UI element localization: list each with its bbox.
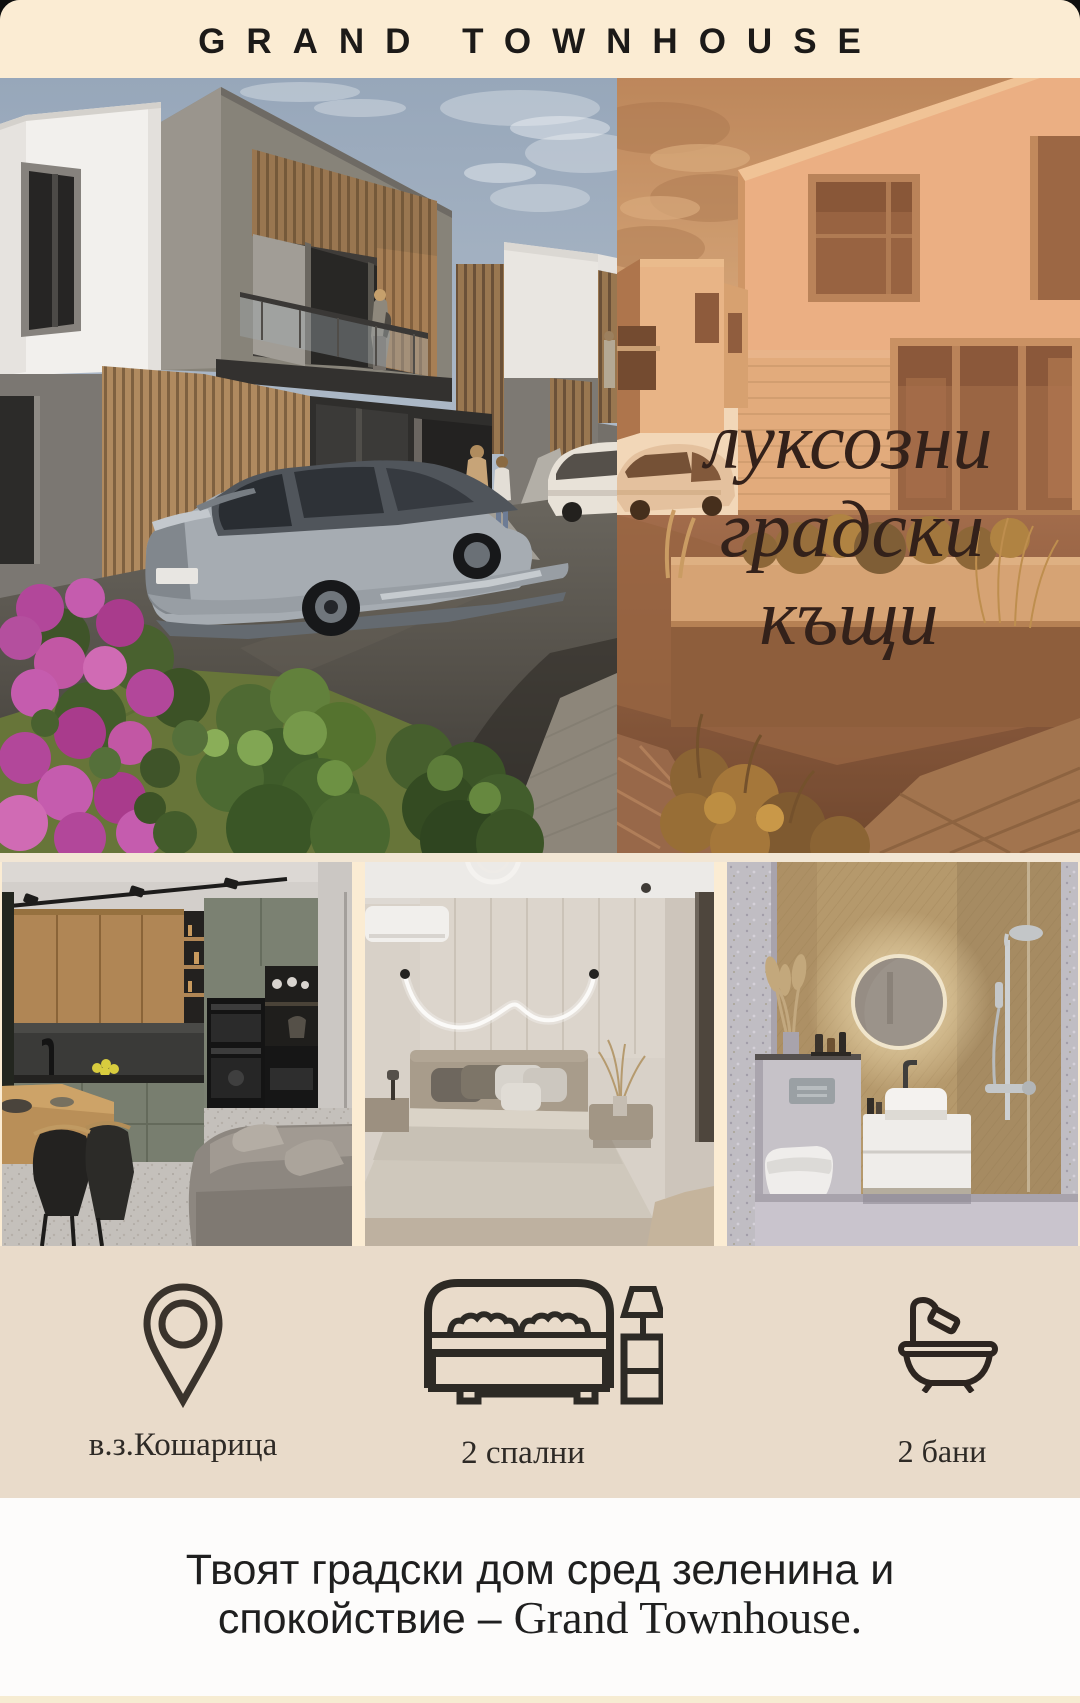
svg-text:градски: градски bbox=[720, 486, 985, 574]
svg-text:къщи: къщи bbox=[759, 574, 938, 662]
svg-text:луксозни: луксозни bbox=[701, 398, 992, 486]
